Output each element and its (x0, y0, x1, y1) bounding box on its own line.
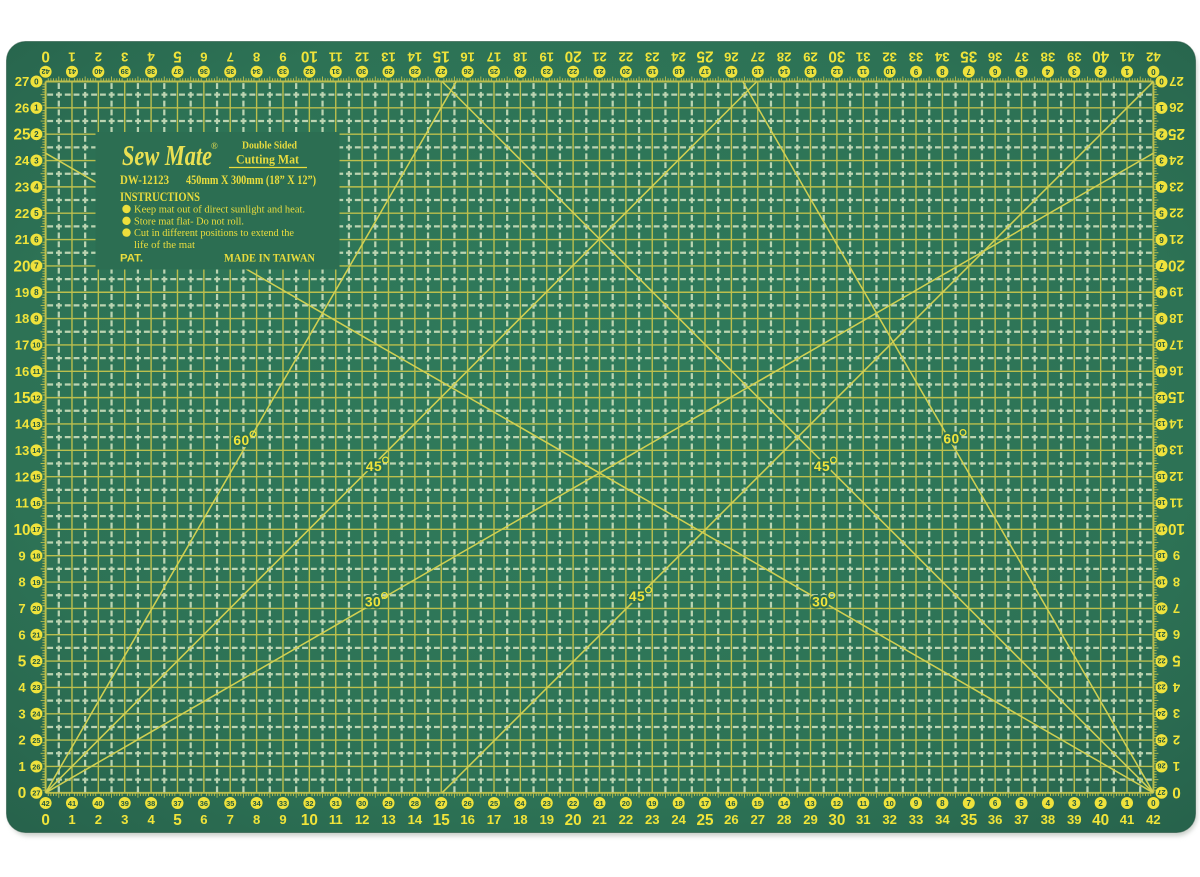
svg-text:27: 27 (437, 799, 445, 808)
svg-text:35: 35 (960, 48, 978, 65)
svg-text:5: 5 (1172, 652, 1181, 669)
svg-text:11: 11 (1158, 366, 1166, 375)
svg-text:12: 12 (355, 812, 370, 827)
svg-text:26: 26 (724, 49, 739, 64)
svg-text:39: 39 (121, 799, 129, 808)
svg-text:38: 38 (1041, 49, 1056, 64)
svg-text:30: 30 (365, 594, 381, 609)
svg-text:1: 1 (1125, 799, 1130, 808)
svg-text:36: 36 (988, 49, 1003, 64)
svg-text:24: 24 (15, 153, 30, 168)
svg-text:9: 9 (279, 812, 286, 827)
svg-text:13: 13 (1169, 443, 1184, 458)
svg-text:1: 1 (68, 812, 75, 827)
svg-text:9: 9 (914, 799, 919, 808)
svg-text:0: 0 (1151, 799, 1156, 808)
svg-text:37: 37 (173, 67, 181, 76)
svg-text:42: 42 (1146, 49, 1161, 64)
svg-text:12: 12 (32, 393, 40, 402)
svg-text:14: 14 (32, 446, 41, 455)
svg-text:1: 1 (1173, 759, 1180, 774)
svg-text:7: 7 (967, 799, 972, 808)
svg-text:19: 19 (648, 67, 656, 76)
svg-text:19: 19 (1169, 285, 1184, 300)
svg-text:7: 7 (227, 812, 234, 827)
svg-text:3: 3 (18, 706, 25, 721)
svg-text:Store mat flat- Do not roll.: Store mat flat- Do not roll. (134, 216, 244, 227)
svg-text:26: 26 (32, 762, 40, 771)
svg-text:5: 5 (173, 812, 182, 829)
svg-text:17: 17 (1157, 525, 1165, 534)
svg-text:32: 32 (882, 49, 897, 64)
svg-text:26: 26 (724, 812, 739, 827)
svg-text:15: 15 (433, 812, 451, 829)
svg-text:20: 20 (13, 258, 30, 275)
svg-text:37: 37 (1014, 812, 1029, 827)
svg-text:20: 20 (565, 812, 582, 829)
svg-text:22: 22 (15, 206, 30, 221)
svg-text:13: 13 (381, 812, 396, 827)
svg-text:36: 36 (988, 812, 1003, 827)
svg-text:9: 9 (34, 314, 39, 323)
svg-text:26: 26 (464, 67, 472, 76)
svg-text:1: 1 (34, 104, 39, 113)
svg-text:2: 2 (34, 130, 39, 139)
svg-text:16: 16 (460, 812, 475, 827)
svg-text:25: 25 (32, 736, 40, 745)
svg-text:33: 33 (909, 812, 924, 827)
svg-text:18: 18 (675, 799, 683, 808)
svg-text:38: 38 (147, 799, 155, 808)
svg-text:18: 18 (513, 49, 528, 64)
svg-text:2: 2 (1159, 129, 1164, 138)
svg-text:20: 20 (1157, 604, 1165, 613)
svg-text:12: 12 (1169, 469, 1184, 484)
svg-text:40: 40 (94, 799, 102, 808)
svg-text:30: 30 (828, 48, 845, 65)
svg-text:31: 31 (856, 812, 871, 827)
svg-text:25: 25 (696, 812, 714, 829)
svg-text:13: 13 (15, 443, 30, 458)
svg-text:1: 1 (68, 49, 75, 64)
svg-text:25: 25 (13, 127, 31, 144)
svg-text:®: ® (211, 141, 218, 151)
svg-text:20: 20 (32, 604, 40, 613)
svg-text:22: 22 (1169, 206, 1184, 221)
svg-text:19: 19 (648, 799, 656, 808)
svg-text:2: 2 (1173, 733, 1180, 748)
svg-text:16: 16 (1169, 364, 1184, 379)
svg-text:21: 21 (1169, 232, 1184, 247)
svg-text:23: 23 (1169, 179, 1184, 194)
svg-text:31: 31 (332, 67, 340, 76)
svg-text:8: 8 (940, 67, 945, 76)
svg-text:24: 24 (515, 67, 524, 76)
svg-text:18: 18 (513, 812, 528, 827)
svg-text:34: 34 (934, 49, 949, 64)
svg-text:22: 22 (569, 799, 577, 808)
svg-text:30: 30 (828, 812, 845, 829)
svg-text:18: 18 (675, 67, 683, 76)
svg-text:5: 5 (18, 653, 27, 670)
svg-text:19: 19 (32, 578, 40, 587)
svg-text:39: 39 (1067, 49, 1082, 64)
svg-text:9: 9 (18, 548, 25, 563)
svg-text:11: 11 (32, 367, 40, 376)
svg-text:12: 12 (15, 469, 30, 484)
svg-text:16: 16 (1157, 498, 1165, 507)
svg-text:Double Sided: Double Sided (242, 140, 297, 152)
svg-text:33: 33 (279, 799, 287, 808)
svg-text:21: 21 (1157, 630, 1165, 639)
svg-text:20: 20 (622, 799, 630, 808)
svg-text:35: 35 (960, 812, 978, 829)
svg-text:41: 41 (68, 799, 76, 808)
svg-text:40: 40 (1092, 812, 1109, 829)
svg-text:33: 33 (909, 49, 924, 64)
svg-text:7: 7 (1159, 261, 1164, 270)
svg-text:25: 25 (1168, 125, 1186, 142)
svg-text:11: 11 (859, 799, 867, 808)
svg-text:2: 2 (95, 812, 102, 827)
svg-text:34: 34 (252, 67, 261, 76)
svg-text:23: 23 (543, 67, 551, 76)
svg-text:23: 23 (645, 812, 660, 827)
svg-text:24: 24 (516, 799, 525, 808)
svg-text:7: 7 (34, 262, 39, 271)
svg-text:32: 32 (882, 812, 897, 827)
svg-text:12: 12 (355, 49, 370, 64)
svg-text:42: 42 (41, 67, 49, 76)
svg-text:4: 4 (1172, 680, 1180, 695)
svg-text:13: 13 (381, 49, 396, 64)
svg-text:23: 23 (32, 683, 40, 692)
svg-text:DW-12123: DW-12123 (120, 172, 169, 187)
svg-text:2: 2 (18, 733, 25, 748)
svg-text:3: 3 (1071, 67, 1076, 76)
svg-text:31: 31 (856, 49, 871, 64)
svg-text:17: 17 (701, 799, 709, 808)
svg-text:24: 24 (1169, 153, 1184, 168)
svg-text:8: 8 (1159, 287, 1164, 296)
svg-text:6: 6 (1173, 627, 1180, 642)
svg-text:6: 6 (18, 627, 25, 642)
svg-text:23: 23 (15, 179, 30, 194)
svg-text:15: 15 (754, 799, 762, 808)
svg-text:41: 41 (1120, 812, 1135, 827)
svg-text:17: 17 (32, 525, 40, 534)
svg-text:6: 6 (993, 799, 998, 808)
svg-text:10: 10 (32, 341, 40, 350)
svg-text:18: 18 (1157, 551, 1165, 560)
svg-text:7: 7 (18, 601, 25, 616)
svg-text:Cutting Mat: Cutting Mat (236, 152, 300, 167)
svg-text:Keep mat out of direct sunligh: Keep mat out of direct sunlight and heat… (134, 205, 305, 216)
svg-text:15: 15 (432, 48, 450, 65)
svg-text:8: 8 (18, 575, 25, 590)
svg-text:3: 3 (121, 812, 128, 827)
svg-text:45: 45 (366, 459, 382, 474)
svg-text:41: 41 (1120, 49, 1135, 64)
svg-text:3: 3 (121, 49, 128, 64)
svg-text:17: 17 (487, 812, 502, 827)
svg-text:11: 11 (329, 49, 343, 64)
svg-text:27: 27 (750, 49, 765, 64)
svg-text:21: 21 (592, 812, 607, 827)
svg-text:3: 3 (34, 156, 39, 165)
svg-text:27: 27 (1157, 788, 1165, 797)
svg-text:12: 12 (833, 67, 841, 76)
svg-text:40: 40 (1092, 48, 1109, 65)
svg-text:16: 16 (32, 499, 40, 508)
svg-text:30: 30 (358, 799, 366, 808)
svg-text:12: 12 (1157, 393, 1165, 402)
svg-text:28: 28 (777, 812, 792, 827)
svg-text:9: 9 (279, 49, 286, 64)
svg-text:31: 31 (332, 799, 340, 808)
svg-text:0: 0 (1151, 67, 1156, 76)
svg-text:4: 4 (1159, 182, 1164, 191)
svg-text:6: 6 (34, 235, 39, 244)
svg-text:19: 19 (15, 285, 30, 300)
svg-text:3: 3 (1159, 156, 1164, 165)
svg-text:15: 15 (1168, 388, 1186, 405)
svg-text:2: 2 (95, 49, 102, 64)
svg-text:39: 39 (121, 67, 129, 76)
svg-text:10: 10 (886, 67, 894, 76)
svg-text:0: 0 (41, 48, 50, 65)
svg-text:450mm X 300mm (18” X 12”): 450mm X 300mm (18” X 12”) (186, 173, 316, 187)
svg-text:9: 9 (913, 67, 918, 76)
svg-text:21: 21 (595, 67, 603, 76)
svg-text:9: 9 (1159, 314, 1164, 323)
svg-text:26: 26 (464, 799, 472, 808)
svg-text:17: 17 (15, 338, 30, 353)
svg-text:22: 22 (619, 49, 634, 64)
svg-text:0: 0 (1159, 77, 1164, 86)
svg-text:34: 34 (935, 812, 950, 827)
svg-text:35: 35 (226, 799, 234, 808)
svg-text:27: 27 (1169, 74, 1184, 89)
svg-text:8: 8 (940, 799, 945, 808)
svg-text:11: 11 (859, 67, 867, 76)
svg-text:26: 26 (1169, 100, 1184, 115)
svg-text:12: 12 (833, 799, 841, 808)
svg-text:0: 0 (41, 812, 50, 829)
svg-text:19: 19 (539, 812, 554, 827)
svg-text:6: 6 (992, 67, 997, 76)
svg-text:15: 15 (754, 67, 762, 76)
svg-text:23: 23 (645, 49, 660, 64)
svg-text:0: 0 (34, 77, 39, 86)
svg-text:Sew Mate: Sew Mate (122, 141, 212, 172)
svg-text:42: 42 (1146, 812, 1161, 827)
svg-text:4: 4 (34, 183, 39, 192)
svg-text:2: 2 (1098, 67, 1103, 76)
svg-text:16: 16 (727, 799, 735, 808)
svg-text:8: 8 (34, 288, 39, 297)
svg-text:17: 17 (701, 67, 709, 76)
svg-text:20: 20 (565, 48, 582, 65)
svg-text:39: 39 (1067, 812, 1082, 827)
svg-text:21: 21 (32, 631, 40, 640)
svg-text:19: 19 (539, 49, 554, 64)
svg-text:11: 11 (329, 812, 343, 827)
svg-text:26: 26 (1157, 762, 1165, 771)
svg-text:14: 14 (1157, 446, 1166, 455)
svg-text:30: 30 (812, 594, 828, 609)
svg-text:17: 17 (487, 49, 502, 64)
svg-text:25: 25 (490, 799, 498, 808)
svg-text:Cut in different positions to: Cut in different positions to extend the (134, 228, 294, 239)
svg-text:22: 22 (32, 657, 40, 666)
svg-text:11: 11 (1170, 495, 1184, 510)
svg-text:6: 6 (200, 812, 207, 827)
svg-text:38: 38 (147, 67, 155, 76)
svg-text:7: 7 (227, 49, 234, 64)
svg-text:38: 38 (1041, 812, 1056, 827)
svg-text:0: 0 (1172, 783, 1181, 800)
svg-text:11: 11 (15, 496, 29, 511)
svg-text:3: 3 (1072, 799, 1077, 808)
svg-text:32: 32 (305, 67, 313, 76)
svg-text:22: 22 (569, 67, 577, 76)
svg-text:life of the mat: life of the mat (134, 240, 195, 251)
svg-text:27: 27 (32, 789, 40, 798)
svg-text:15: 15 (1157, 472, 1165, 481)
svg-text:16: 16 (727, 67, 735, 76)
svg-text:4: 4 (1045, 67, 1050, 76)
svg-text:26: 26 (15, 100, 30, 115)
svg-text:10: 10 (13, 522, 30, 539)
svg-text:10: 10 (1157, 340, 1165, 349)
svg-text:60: 60 (233, 433, 249, 448)
svg-text:24: 24 (32, 710, 41, 719)
svg-text:21: 21 (15, 232, 30, 247)
svg-text:25: 25 (696, 48, 714, 65)
svg-text:8: 8 (253, 49, 260, 64)
svg-text:6: 6 (1159, 235, 1164, 244)
svg-text:45: 45 (629, 589, 645, 604)
svg-text:5: 5 (1019, 67, 1024, 76)
svg-text:20: 20 (622, 67, 630, 76)
svg-text:32: 32 (305, 799, 313, 808)
svg-text:21: 21 (595, 799, 603, 808)
svg-text:24: 24 (1157, 709, 1166, 718)
svg-text:45: 45 (814, 459, 830, 474)
svg-text:5: 5 (34, 209, 39, 218)
svg-text:29: 29 (384, 67, 392, 76)
svg-text:1: 1 (18, 759, 25, 774)
svg-text:21: 21 (592, 49, 607, 64)
svg-text:INSTRUCTIONS: INSTRUCTIONS (120, 190, 200, 204)
svg-text:41: 41 (68, 67, 76, 76)
svg-text:22: 22 (619, 812, 634, 827)
svg-text:13: 13 (806, 799, 814, 808)
svg-text:1: 1 (1124, 67, 1129, 76)
svg-text:14: 14 (407, 49, 422, 64)
svg-text:4: 4 (1046, 799, 1051, 808)
svg-text:5: 5 (1019, 799, 1024, 808)
svg-text:35: 35 (226, 67, 234, 76)
svg-text:13: 13 (32, 420, 40, 429)
svg-text:16: 16 (15, 364, 30, 379)
svg-text:8: 8 (1173, 574, 1180, 589)
svg-text:2: 2 (1098, 799, 1103, 808)
svg-text:10: 10 (301, 812, 318, 829)
svg-text:18: 18 (1169, 311, 1184, 326)
svg-text:6: 6 (200, 49, 207, 64)
svg-text:14: 14 (15, 417, 30, 432)
svg-text:34: 34 (252, 799, 261, 808)
svg-text:4: 4 (147, 812, 155, 827)
svg-text:15: 15 (13, 390, 31, 407)
svg-text:5: 5 (173, 48, 182, 65)
svg-text:4: 4 (18, 680, 26, 695)
svg-text:42: 42 (41, 799, 49, 808)
svg-text:40: 40 (94, 67, 102, 76)
svg-text:14: 14 (1169, 416, 1184, 431)
svg-text:7: 7 (966, 67, 971, 76)
svg-text:14: 14 (780, 799, 789, 808)
svg-text:60: 60 (943, 431, 959, 446)
svg-text:25: 25 (490, 67, 498, 76)
svg-text:29: 29 (803, 49, 818, 64)
svg-text:20: 20 (1168, 257, 1185, 274)
svg-text:1: 1 (1159, 103, 1164, 112)
svg-text:15: 15 (32, 472, 40, 481)
svg-text:17: 17 (1169, 337, 1184, 352)
svg-text:33: 33 (279, 67, 287, 76)
svg-text:27: 27 (750, 812, 765, 827)
svg-text:29: 29 (384, 799, 392, 808)
svg-text:24: 24 (671, 49, 686, 64)
svg-text:MADE IN TAIWAN: MADE IN TAIWAN (224, 251, 315, 265)
svg-text:23: 23 (543, 799, 551, 808)
svg-text:PAT.: PAT. (120, 253, 143, 265)
svg-text:25: 25 (1157, 735, 1165, 744)
svg-text:37: 37 (1014, 49, 1029, 64)
svg-text:28: 28 (411, 799, 419, 808)
svg-text:19: 19 (1157, 577, 1165, 586)
svg-text:9: 9 (1173, 548, 1180, 563)
svg-text:24: 24 (671, 812, 686, 827)
svg-text:36: 36 (200, 67, 208, 76)
svg-text:29: 29 (803, 812, 818, 827)
svg-text:10: 10 (1168, 520, 1185, 537)
svg-text:3: 3 (1173, 706, 1180, 721)
svg-text:22: 22 (1157, 656, 1165, 665)
svg-text:14: 14 (779, 67, 788, 76)
svg-text:30: 30 (358, 67, 366, 76)
svg-text:5: 5 (1159, 208, 1164, 217)
svg-text:10: 10 (886, 799, 894, 808)
svg-text:4: 4 (147, 49, 155, 64)
svg-text:18: 18 (15, 311, 30, 326)
svg-text:27: 27 (15, 74, 30, 89)
svg-text:37: 37 (173, 799, 181, 808)
svg-text:13: 13 (1157, 419, 1165, 428)
svg-text:28: 28 (411, 67, 419, 76)
svg-text:23: 23 (1157, 683, 1165, 692)
svg-text:8: 8 (253, 812, 260, 827)
svg-text:10: 10 (301, 48, 318, 65)
svg-text:36: 36 (200, 799, 208, 808)
svg-text:13: 13 (806, 67, 814, 76)
svg-text:7: 7 (1173, 601, 1180, 616)
svg-text:28: 28 (777, 49, 792, 64)
svg-text:14: 14 (408, 812, 423, 827)
